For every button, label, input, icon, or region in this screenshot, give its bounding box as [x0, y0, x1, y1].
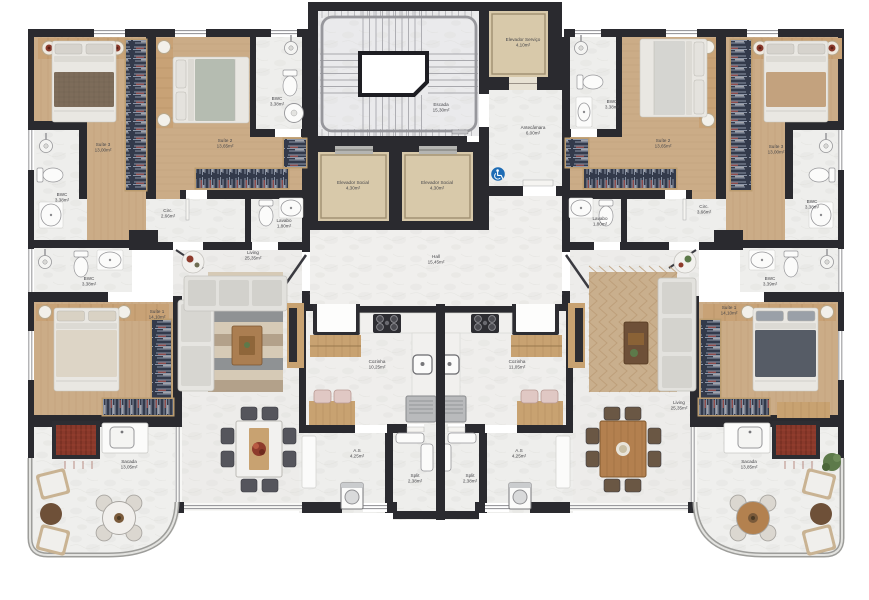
- svg-text:Hall: Hall: [432, 254, 440, 259]
- svg-text:2,38m²: 2,38m²: [463, 478, 478, 483]
- svg-text:3,38m²: 3,38m²: [55, 197, 70, 202]
- svg-text:13,85m²: 13,85m²: [741, 464, 758, 469]
- svg-text:BWC: BWC: [84, 276, 95, 281]
- svg-text:Elevador Serviço: Elevador Serviço: [506, 37, 541, 42]
- svg-text:3,66m²: 3,66m²: [697, 209, 712, 214]
- svg-text:Circ.: Circ.: [699, 204, 708, 209]
- svg-text:4,10m²: 4,10m²: [516, 42, 531, 47]
- svg-text:Suíte 1: Suíte 1: [150, 309, 165, 314]
- svg-text:Suíte 3: Suíte 3: [96, 142, 111, 147]
- svg-text:25,35m²: 25,35m²: [245, 255, 262, 260]
- svg-text:Elevador Social: Elevador Social: [337, 180, 369, 185]
- svg-text:Living: Living: [247, 250, 259, 255]
- svg-text:4,25m²: 4,25m²: [512, 453, 527, 458]
- svg-text:10,25m²: 10,25m²: [369, 364, 386, 369]
- svg-text:BWC: BWC: [272, 96, 283, 101]
- svg-text:Sacada: Sacada: [121, 459, 137, 464]
- svg-text:6,00m²: 6,00m²: [526, 130, 541, 135]
- svg-text:Split: Split: [466, 473, 476, 478]
- svg-text:Suíte 2: Suíte 2: [656, 138, 671, 143]
- svg-text:4,25m²: 4,25m²: [350, 453, 365, 458]
- svg-text:3,38m²: 3,38m²: [605, 104, 620, 109]
- svg-text:BWC: BWC: [607, 99, 618, 104]
- svg-text:Circ.: Circ.: [163, 208, 172, 213]
- svg-text:BWC: BWC: [765, 276, 776, 281]
- svg-text:Cozinha: Cozinha: [509, 359, 526, 364]
- svg-text:25,35m²: 25,35m²: [671, 405, 688, 410]
- svg-text:4,30m²: 4,30m²: [346, 185, 361, 190]
- svg-text:13,00m²: 13,00m²: [768, 149, 785, 154]
- svg-text:13,00m²: 13,00m²: [95, 147, 112, 152]
- svg-text:Lavabo: Lavabo: [276, 218, 292, 223]
- svg-text:14,10m²: 14,10m²: [721, 310, 738, 315]
- svg-text:1,80m²: 1,80m²: [277, 223, 292, 228]
- svg-text:A.S: A.S: [353, 448, 360, 453]
- svg-text:Sacada: Sacada: [741, 459, 757, 464]
- svg-text:Suíte 2: Suíte 2: [218, 138, 233, 143]
- svg-text:1,80m²: 1,80m²: [593, 221, 608, 226]
- svg-text:Suíte 1: Suíte 1: [722, 305, 737, 310]
- svg-text:Suíte 3: Suíte 3: [769, 144, 784, 149]
- svg-text:Living: Living: [673, 400, 685, 405]
- svg-text:Antecâmara: Antecâmara: [521, 125, 546, 130]
- svg-text:Cozinha: Cozinha: [369, 359, 386, 364]
- svg-text:Lavabo: Lavabo: [592, 216, 608, 221]
- svg-text:3,38m²: 3,38m²: [805, 204, 820, 209]
- svg-text:3,38m²: 3,38m²: [82, 281, 97, 286]
- svg-text:A.S: A.S: [515, 448, 522, 453]
- svg-text:4,30m²: 4,30m²: [430, 185, 445, 190]
- svg-text:Split: Split: [411, 473, 421, 478]
- svg-text:3,38m²: 3,38m²: [270, 101, 285, 106]
- svg-text:13,05m²: 13,05m²: [121, 464, 138, 469]
- svg-text:Escada: Escada: [433, 102, 449, 107]
- svg-text:11,05m²: 11,05m²: [509, 364, 526, 369]
- svg-text:15,30m²: 15,30m²: [433, 107, 450, 112]
- svg-text:2,38m²: 2,38m²: [408, 478, 423, 483]
- svg-text:3,39m²: 3,39m²: [763, 281, 778, 286]
- svg-text:BWC: BWC: [57, 192, 68, 197]
- svg-text:BWC: BWC: [807, 199, 818, 204]
- svg-text:15,45m²: 15,45m²: [428, 259, 445, 264]
- svg-text:13,65m²: 13,65m²: [655, 143, 672, 148]
- svg-text:2,66m²: 2,66m²: [161, 213, 176, 218]
- svg-text:13,65m²: 13,65m²: [217, 143, 234, 148]
- svg-text:14,10m²: 14,10m²: [149, 314, 166, 319]
- svg-text:Elevador Social: Elevador Social: [421, 180, 453, 185]
